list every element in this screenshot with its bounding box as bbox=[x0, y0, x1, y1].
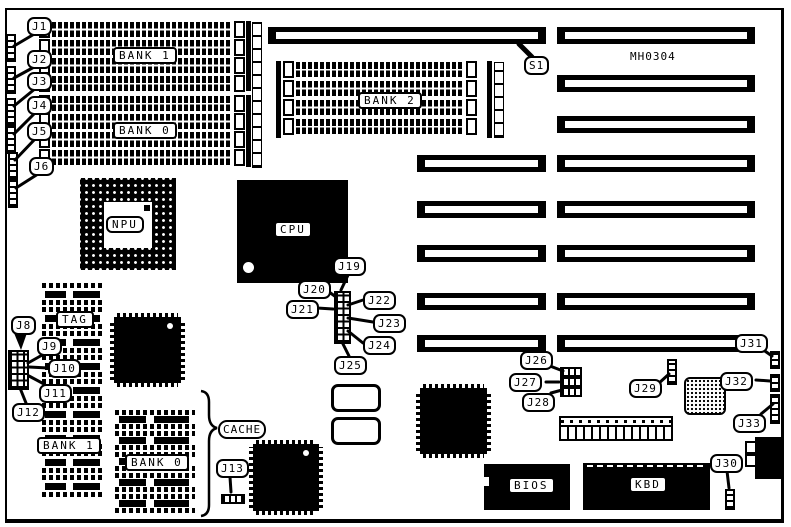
simm-socket bbox=[296, 119, 464, 134]
cache-label: CACHE bbox=[218, 420, 266, 439]
isa-slot bbox=[557, 27, 755, 44]
callout-j13: J13 bbox=[216, 459, 249, 478]
callout-j33: J33 bbox=[733, 414, 766, 433]
qfp-pin1-dot bbox=[303, 450, 309, 456]
simm-rail bbox=[246, 95, 251, 167]
callout-j29: J29 bbox=[629, 379, 662, 398]
simm-rail bbox=[246, 21, 251, 91]
keyboard-connector-tab bbox=[745, 441, 757, 454]
jumper-j29-pins bbox=[667, 359, 677, 385]
jumper-j2-pins bbox=[6, 66, 16, 94]
qfp-pin1-dot bbox=[167, 323, 173, 329]
jumper-j6-pins bbox=[8, 180, 18, 208]
jumper-j33-pins bbox=[770, 394, 780, 424]
jumper-j4-pins bbox=[6, 126, 16, 154]
npu-pin1-marker bbox=[144, 205, 150, 211]
callout-j32: J32 bbox=[720, 372, 753, 391]
simm-latches bbox=[252, 22, 262, 168]
callout-j27: J27 bbox=[509, 373, 542, 392]
dip-socket bbox=[42, 283, 104, 305]
isa-slot bbox=[557, 335, 755, 352]
callout-j5: J5 bbox=[27, 122, 52, 141]
isa-slot-ext bbox=[417, 335, 546, 352]
npu-label: NPU bbox=[106, 216, 144, 233]
bank0-simm-label: BANK 0 bbox=[113, 122, 177, 139]
board-model-text: MH0304 bbox=[630, 50, 676, 63]
cpu-pin1-dot bbox=[243, 262, 254, 273]
callout-j2: J2 bbox=[27, 50, 52, 69]
dip-socket bbox=[115, 431, 195, 450]
oscillator bbox=[331, 417, 381, 445]
tag-label: TAG bbox=[56, 311, 94, 328]
jumper-j1-pins bbox=[6, 34, 16, 62]
simm-socket bbox=[52, 96, 232, 111]
isa-slot-ext bbox=[417, 293, 546, 310]
callout-j22: J22 bbox=[363, 291, 396, 310]
keyboard-connector bbox=[755, 437, 783, 479]
simm-socket bbox=[296, 62, 464, 77]
isa-slot bbox=[557, 116, 755, 133]
bank0-dram-label: BANK 0 bbox=[125, 454, 189, 471]
jumper-j27-pins bbox=[560, 377, 582, 387]
bank1-dram-label: BANK 1 bbox=[37, 437, 101, 454]
callout-j23: J23 bbox=[373, 314, 406, 333]
dip-socket bbox=[115, 410, 195, 429]
keyboard-connector-tab bbox=[745, 454, 757, 467]
callout-j3: J3 bbox=[27, 72, 52, 91]
callout-j4: J4 bbox=[27, 96, 52, 115]
simm-latches bbox=[494, 62, 504, 138]
simm-rail bbox=[276, 61, 281, 138]
kbd-chip-dashed-line bbox=[587, 465, 706, 467]
simm-socket bbox=[52, 22, 232, 37]
isa-slot bbox=[557, 75, 755, 92]
jumper-j3-pins bbox=[6, 98, 16, 126]
kbd-label: KBD bbox=[629, 476, 667, 493]
io-controller-qfp bbox=[420, 388, 487, 454]
callout-j25: J25 bbox=[334, 356, 367, 375]
callout-j8: J8 bbox=[11, 316, 36, 335]
jumper-j13-pins bbox=[221, 494, 245, 504]
jumper-j28-pins bbox=[560, 387, 582, 397]
cpu-jumper-block bbox=[334, 291, 351, 344]
isa-slot bbox=[557, 293, 755, 310]
oscillator bbox=[331, 384, 381, 412]
callout-j21: J21 bbox=[286, 300, 319, 319]
simm-socket bbox=[52, 76, 232, 91]
callout-j28: J28 bbox=[522, 393, 555, 412]
callout-j6: J6 bbox=[29, 157, 54, 176]
dip-socket bbox=[115, 473, 195, 492]
jumper-j31-pins bbox=[770, 351, 780, 369]
simm-rail bbox=[487, 61, 492, 138]
isa-slot bbox=[557, 245, 755, 262]
dip-socket bbox=[115, 494, 195, 513]
bios-notch bbox=[484, 477, 489, 486]
jumper-j5-pins bbox=[8, 152, 18, 180]
callout-j26: J26 bbox=[520, 351, 553, 370]
jumper-j26-pins bbox=[560, 367, 582, 377]
isa-slot-ext bbox=[417, 245, 546, 262]
memory-slot-s1 bbox=[268, 27, 546, 44]
isa-slot-ext bbox=[417, 155, 546, 172]
callout-j9: J9 bbox=[37, 337, 62, 356]
isa-slot bbox=[557, 201, 755, 218]
callout-j31: J31 bbox=[735, 334, 768, 353]
dip-socket bbox=[42, 451, 104, 473]
callout-j11: J11 bbox=[39, 384, 72, 403]
simm-socket bbox=[52, 150, 232, 165]
callout-j20: J20 bbox=[298, 280, 331, 299]
dip-switch-block bbox=[559, 416, 673, 441]
dip-socket bbox=[42, 475, 104, 497]
callout-s1: S1 bbox=[524, 56, 549, 75]
callout-j1: J1 bbox=[27, 17, 52, 36]
cpu-label: CPU bbox=[274, 221, 312, 238]
config-jumper-block bbox=[8, 350, 29, 390]
callout-j10: J10 bbox=[48, 359, 81, 378]
callout-j19: J19 bbox=[333, 257, 366, 276]
cache-controller-qfp bbox=[253, 444, 319, 511]
dip-socket bbox=[42, 403, 104, 425]
jumper-j32-pins bbox=[770, 374, 780, 392]
isa-slot-ext bbox=[417, 201, 546, 218]
motherboard-diagram: BANK 1 BANK 0 J1 J2 J3 J4 J5 J6 S1 MH030… bbox=[0, 0, 791, 527]
bank1-simm-label: BANK 1 bbox=[113, 47, 177, 64]
callout-j24: J24 bbox=[363, 336, 396, 355]
jumper-j30-pins bbox=[725, 489, 735, 510]
isa-slot bbox=[557, 155, 755, 172]
callout-j12: J12 bbox=[12, 403, 45, 422]
bios-label: BIOS bbox=[508, 477, 555, 494]
callout-j30: J30 bbox=[710, 454, 743, 473]
bank2-simm-label: BANK 2 bbox=[358, 92, 422, 109]
